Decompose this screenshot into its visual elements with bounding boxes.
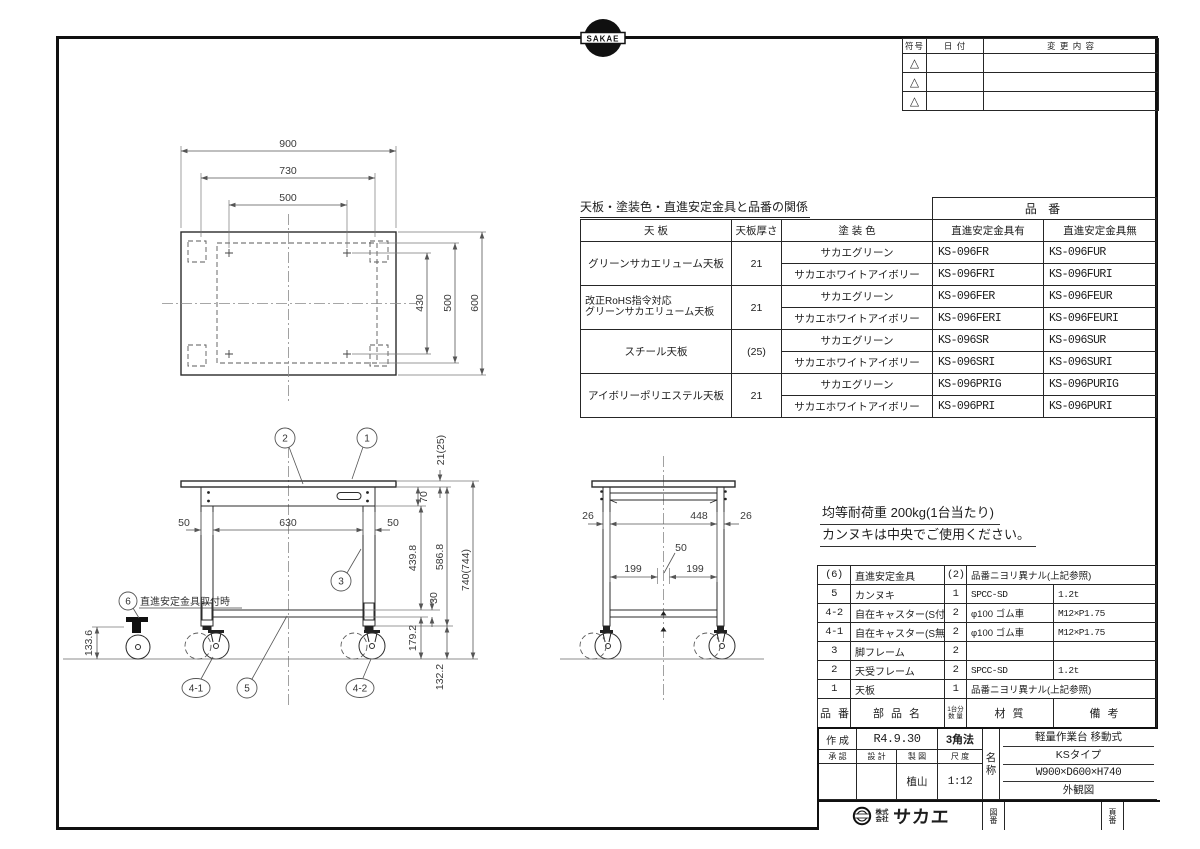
relation-partno-without: KS-096FURI <box>1044 264 1157 286</box>
front-dim-apron-height: 70 <box>418 491 430 503</box>
part-material: 品番ニヨリ異ナル(上記参照) <box>967 680 1157 699</box>
drawing-views: .obj{stroke:#2b2b2b;stroke-width:1.4;fil… <box>56 100 826 812</box>
part-name: カンヌキ <box>851 585 945 604</box>
relation-partno-without: KS-096FEUR <box>1044 286 1157 308</box>
company-prefix-line1: 株式 <box>876 809 889 816</box>
title-block: 作 成 R4.9.30 3角法 承 認 設 計 製 図 尺 度 植山 1:12 … <box>817 727 1158 830</box>
part-name: 天受フレーム <box>851 661 945 680</box>
revision-content <box>984 54 1159 73</box>
front-dim-total-height: 740(744) <box>460 549 472 591</box>
parts-col-material: 材 質 <box>967 699 1054 728</box>
projection-method: 3角法 <box>938 729 983 750</box>
part-material: φ100 ゴム車 <box>967 604 1054 623</box>
parts-col-qty: 1台分 数 量 <box>945 699 967 728</box>
part-name: 天板 <box>851 680 945 699</box>
front-dim-h1: 439.8 <box>407 545 419 571</box>
revision-date <box>927 54 984 73</box>
company-prefix: 株式 会社 <box>876 809 889 823</box>
drawing-sheet: SAKAE 符号 日 付 変 更 内 容 △ △ △ 天板・塗装色・直進安定金具… <box>0 0 1200 849</box>
revision-date <box>927 92 984 111</box>
part-material: SPCC-SD <box>967 585 1054 604</box>
part-name: 自在キャスター(S付) <box>851 604 945 623</box>
load-note-line1: 均等耐荷重 200kg(1台当たり) <box>820 503 1000 525</box>
revision-col-date: 日 付 <box>927 39 984 54</box>
side-dim-c1: 199 <box>624 563 642 575</box>
parts-col-name: 部 品 名 <box>851 699 945 728</box>
front-dim-top-thickness: 21(25) <box>435 435 447 465</box>
plan-dim-depth: 600 <box>469 294 481 312</box>
parts-col-qty-line1: 1台分 <box>947 706 964 713</box>
balloon-6: 6 <box>125 597 131 608</box>
part-remarks <box>1054 642 1157 661</box>
page-no-label: 頁番 <box>1102 802 1124 830</box>
logo-text: SAKAE <box>586 35 619 44</box>
front-dim-h2: 586.8 <box>434 544 446 570</box>
part-qty: 2 <box>945 642 967 661</box>
name-content: 軽量作業台 移動式 KSタイプ W900×D600×H740 外観図 <box>1000 729 1157 800</box>
title-block-bottom-row: 株式 会社 サカエ 図番 頁番 <box>819 800 1160 830</box>
drawn-value: 植山 <box>897 764 938 800</box>
balloon-4-1: 4-1 <box>189 684 204 695</box>
load-capacity-note: 均等耐荷重 200kg(1台当たり) カンヌキは中央でご使用ください。 <box>820 503 1036 547</box>
revision-col-symbol: 符号 <box>903 39 927 54</box>
part-qty: 2 <box>945 661 967 680</box>
front-dim-h3: 179.2 <box>407 625 419 651</box>
company-name: サカエ <box>892 803 951 829</box>
revision-col-content: 変 更 内 容 <box>984 39 1159 54</box>
drawing-no-value <box>1005 802 1102 830</box>
front-dim-rail-height: 30 <box>428 592 440 604</box>
plan-dim-inner-depth2: 500 <box>442 294 454 312</box>
relation-partno-with: KS-096PRIG <box>933 374 1044 396</box>
sakae-logo-mark <box>852 806 872 826</box>
plan-dim-inner-width: 500 <box>279 192 297 204</box>
front-dim-inner-width: 630 <box>279 517 297 529</box>
side-dim-gap: 50 <box>675 542 687 554</box>
product-name: 軽量作業台 移動式 <box>1003 729 1154 747</box>
part-name: 直進安定金具 <box>851 566 945 585</box>
front-dim-leg-right: 50 <box>387 517 399 529</box>
parts-col-qty-line2: 数 量 <box>948 713 963 720</box>
front-dim-leg-left: 50 <box>178 517 190 529</box>
scale-label: 尺 度 <box>938 750 983 764</box>
drawn-label: 製 図 <box>897 750 938 764</box>
company-logo-cell: 株式 会社 サカエ <box>819 802 983 830</box>
plan-view: 900 730 500 430 500 600 <box>162 138 486 403</box>
balloon-5: 5 <box>244 684 250 695</box>
revision-content <box>984 73 1159 92</box>
side-dim-inner-depth: 448 <box>690 510 708 522</box>
relation-col-without: 直進安定金具無 <box>1044 220 1157 242</box>
part-material: SPCC-SD <box>967 661 1054 680</box>
relation-partno-with: KS-096FR <box>933 242 1044 264</box>
relation-partno-with: KS-096SR <box>933 330 1044 352</box>
relation-partno-without: KS-096PURIG <box>1044 374 1157 396</box>
plan-dim-frame-width: 730 <box>279 165 297 177</box>
relation-partno-with: KS-096SRI <box>933 352 1044 374</box>
relation-partno-without: KS-096PURI <box>1044 396 1157 418</box>
part-remarks: 1.2t <box>1054 585 1157 604</box>
relation-col-with: 直進安定金具有 <box>933 220 1044 242</box>
relation-partno-without: KS-096SUR <box>1044 330 1157 352</box>
parts-col-remarks: 備 考 <box>1054 699 1157 728</box>
part-name: 脚フレーム <box>851 642 945 661</box>
relation-partno-with: KS-096FRI <box>933 264 1044 286</box>
page-no-value <box>1124 802 1157 830</box>
balloon-2: 2 <box>282 434 288 445</box>
relation-partno-without: KS-096FEURI <box>1044 308 1157 330</box>
revision-symbol: △ <box>903 73 927 92</box>
scale-value: 1:12 <box>938 764 983 800</box>
front-dim-stab-caster-height: 133.6 <box>83 630 95 656</box>
front-view: 21(25) 70 50 630 50 439.8 586.8 740(744) <box>63 428 479 708</box>
relation-partno-with: KS-096FER <box>933 286 1044 308</box>
part-qty: 1 <box>945 680 967 699</box>
relation-partno-with: KS-096FERI <box>933 308 1044 330</box>
product-type: KSタイプ <box>1003 747 1154 765</box>
part-qty: (2) <box>945 566 967 585</box>
plan-dim-width: 900 <box>279 138 297 150</box>
part-name: 自在キャスター(S無) <box>851 623 945 642</box>
part-material <box>967 642 1054 661</box>
relation-partno-without: KS-096SURI <box>1044 352 1157 374</box>
plan-dim-inner-depth1: 430 <box>414 294 426 312</box>
sakae-logo-top: SAKAE <box>577 13 629 63</box>
part-qty: 2 <box>945 604 967 623</box>
side-dim-c2: 199 <box>686 563 704 575</box>
revision-symbol: △ <box>903 92 927 111</box>
revision-symbol: △ <box>903 54 927 73</box>
side-dim-leg-left: 26 <box>582 510 594 522</box>
designed-label: 設 計 <box>857 750 897 764</box>
front-dim-caster-height: 132.2 <box>434 664 446 690</box>
balloon-callouts: 2 1 3 5 4-1 4-2 6 直進安定金具取付時 <box>119 428 377 698</box>
part-qty: 1 <box>945 585 967 604</box>
revision-table: 符号 日 付 変 更 内 容 △ △ △ <box>902 38 1159 111</box>
part-material: φ100 ゴム車 <box>967 623 1054 642</box>
balloon-1: 1 <box>364 434 370 445</box>
designed-value <box>857 764 897 800</box>
company-prefix-line2: 会社 <box>876 816 889 823</box>
side-dim-leg-right: 26 <box>740 510 752 522</box>
drawing-kind: 外観図 <box>1003 782 1154 800</box>
part-qty: 2 <box>945 623 967 642</box>
revision-date <box>927 73 984 92</box>
balloon-3: 3 <box>338 577 344 588</box>
part-material: 品番ニヨリ異ナル(上記参照) <box>967 566 1157 585</box>
balloon-6-note: 直進安定金具取付時 <box>140 595 230 608</box>
part-remarks: 1.2t <box>1054 661 1157 680</box>
part-remarks: M12×P1.75 <box>1054 604 1157 623</box>
side-view: 26 448 26 199 199 50 <box>560 456 764 703</box>
product-size: W900×D600×H740 <box>1003 765 1154 783</box>
revision-content <box>984 92 1159 111</box>
part-remarks: M12×P1.75 <box>1054 623 1157 642</box>
drawing-no-label: 図番 <box>983 802 1005 830</box>
relation-partno-with: KS-096PRI <box>933 396 1044 418</box>
relation-part-no-group: 品 番 <box>933 198 1157 220</box>
load-note-line2: カンヌキは中央でご使用ください。 <box>820 525 1036 547</box>
parts-list-table: (6) 直進安定金具 (2) 品番ニヨリ異ナル(上記参照) 5 カンヌキ 1 S… <box>817 565 1157 728</box>
relation-partno-without: KS-096FUR <box>1044 242 1157 264</box>
balloon-4-2: 4-2 <box>353 684 368 695</box>
created-date: R4.9.30 <box>857 729 938 750</box>
name-label: 名称 <box>983 729 1000 800</box>
